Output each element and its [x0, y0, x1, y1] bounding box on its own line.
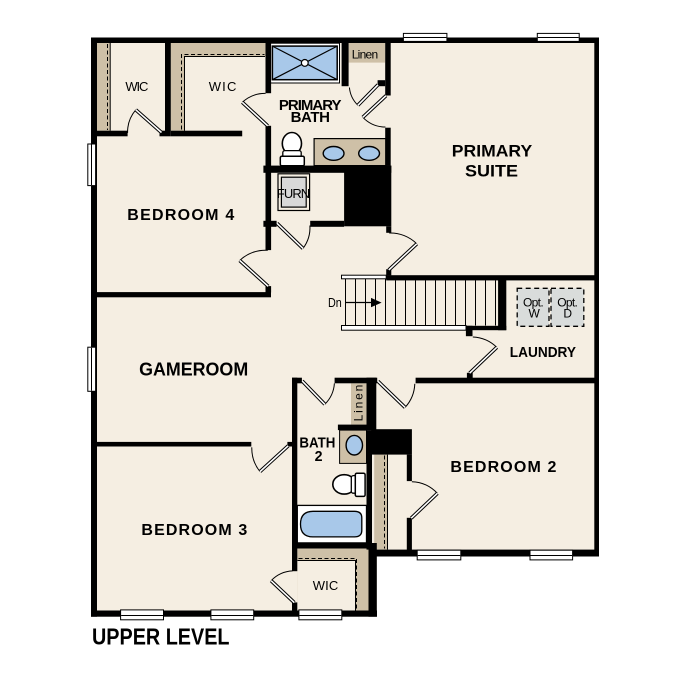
svg-text:Linen: Linen [352, 385, 366, 422]
svg-text:WIC: WIC [125, 79, 148, 94]
svg-text:UPPER LEVEL: UPPER LEVEL [92, 624, 230, 650]
svg-text:WIC: WIC [209, 79, 237, 94]
svg-text:D: D [563, 306, 572, 320]
svg-text:2: 2 [315, 448, 323, 465]
svg-text:W: W [529, 306, 541, 320]
svg-text:Dn: Dn [328, 296, 342, 310]
svg-text:BEDROOM 4: BEDROOM 4 [127, 207, 234, 224]
svg-text:BATH: BATH [291, 109, 330, 126]
svg-text:GAMEROOM: GAMEROOM [139, 359, 248, 379]
svg-text:BEDROOM 2: BEDROOM 2 [450, 459, 556, 476]
svg-text:PRIMARY: PRIMARY [452, 142, 533, 161]
svg-text:Linen: Linen [352, 48, 379, 62]
svg-text:FURN: FURN [277, 186, 310, 201]
svg-text:BEDROOM 3: BEDROOM 3 [141, 522, 247, 539]
svg-text:SUITE: SUITE [465, 161, 518, 180]
svg-text:WIC: WIC [313, 578, 339, 593]
svg-text:LAUNDRY: LAUNDRY [510, 344, 576, 361]
